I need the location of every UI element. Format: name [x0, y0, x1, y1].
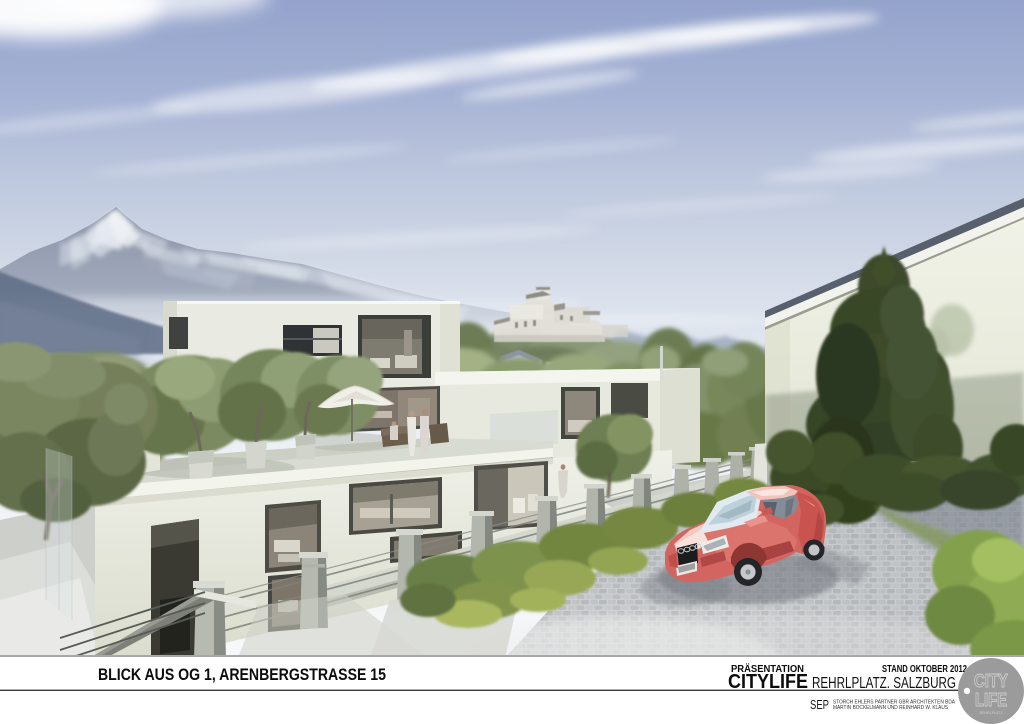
- svg-text:BLICK AUS OG 1, ARENBERGSTRAS: BLICK AUS OG 1, ARENBERGSTRASSE 15: [98, 666, 386, 684]
- svg-text:REHRLPLATZ: REHRLPLATZ: [979, 711, 1003, 715]
- svg-text:MARTIN BOCKELMANN UND REINHARD: MARTIN BOCKELMANN UND REINHARD W. KLAUS: [833, 705, 949, 711]
- svg-text:SEP: SEP: [810, 697, 829, 712]
- svg-text:CITYLIFE: CITYLIFE: [728, 671, 808, 693]
- svg-text:LIFE: LIFE: [975, 690, 1007, 710]
- svg-text:STAND OKTOBER 2012: STAND OKTOBER 2012: [882, 664, 967, 675]
- svg-text:CITY: CITY: [974, 671, 1008, 691]
- svg-text:REHRLPLATZ. SALZBURG: REHRLPLATZ. SALZBURG: [812, 675, 956, 692]
